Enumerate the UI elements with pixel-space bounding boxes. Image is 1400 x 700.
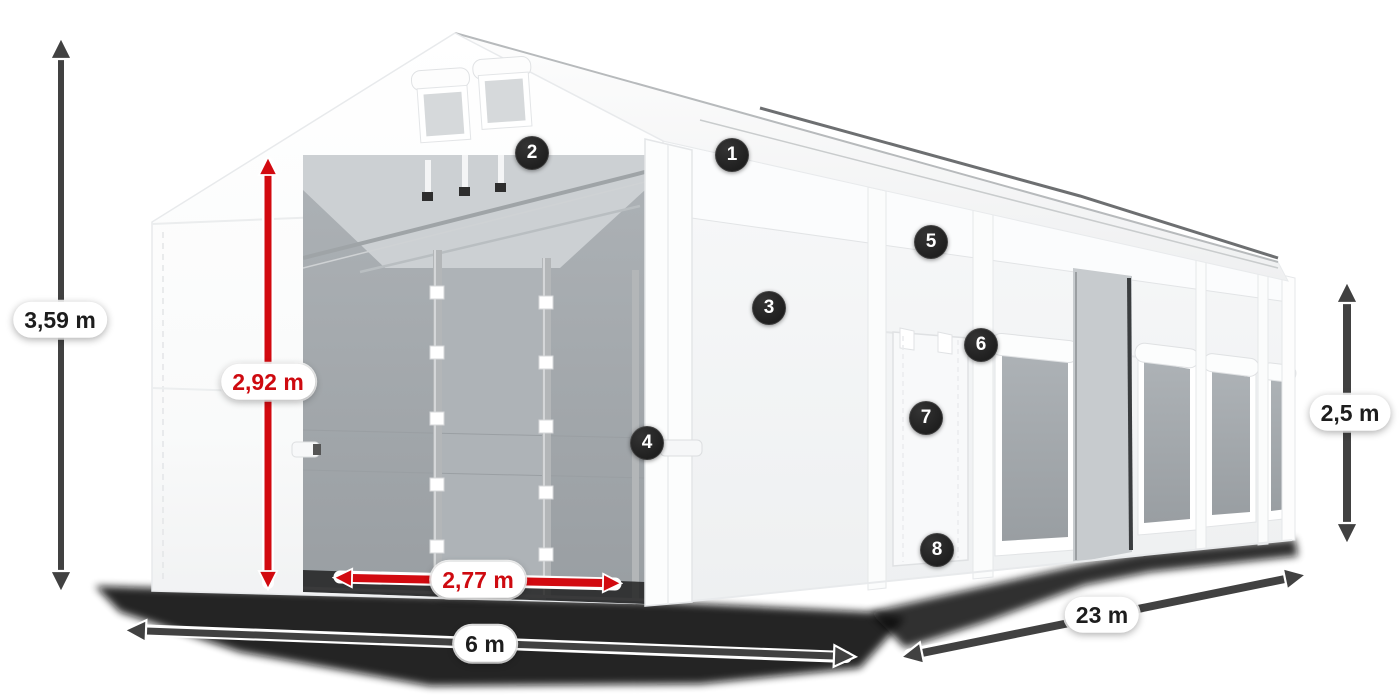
side-height-label: 2,5 m [1310, 395, 1391, 431]
product-dimension-figure: 3,59 m 2,92 m 2,77 m 6 m 23 m 2,5 m 1 2 … [0, 0, 1400, 700]
callout-badge-3[interactable]: 3 [752, 291, 786, 325]
door-width-label: 2,77 m [431, 562, 525, 598]
callout-badge-7[interactable]: 7 [909, 401, 943, 435]
front-opening-interior [303, 152, 645, 604]
door-handle-right [660, 440, 702, 456]
length-label: 23 m [1065, 597, 1139, 633]
front-face [152, 33, 702, 606]
door-height-label: 2,92 m [221, 364, 315, 400]
callout-badge-5[interactable]: 5 [914, 225, 948, 259]
callout-badge-4[interactable]: 4 [630, 426, 664, 460]
tent-illustration [0, 0, 1400, 700]
width-label: 6 m [454, 626, 516, 662]
callout-badge-1[interactable]: 1 [715, 138, 749, 172]
callout-badge-2[interactable]: 2 [515, 136, 549, 170]
total-height-label: 3,59 m [13, 302, 107, 338]
callout-badge-8[interactable]: 8 [920, 533, 954, 567]
callout-badge-6[interactable]: 6 [964, 328, 998, 362]
